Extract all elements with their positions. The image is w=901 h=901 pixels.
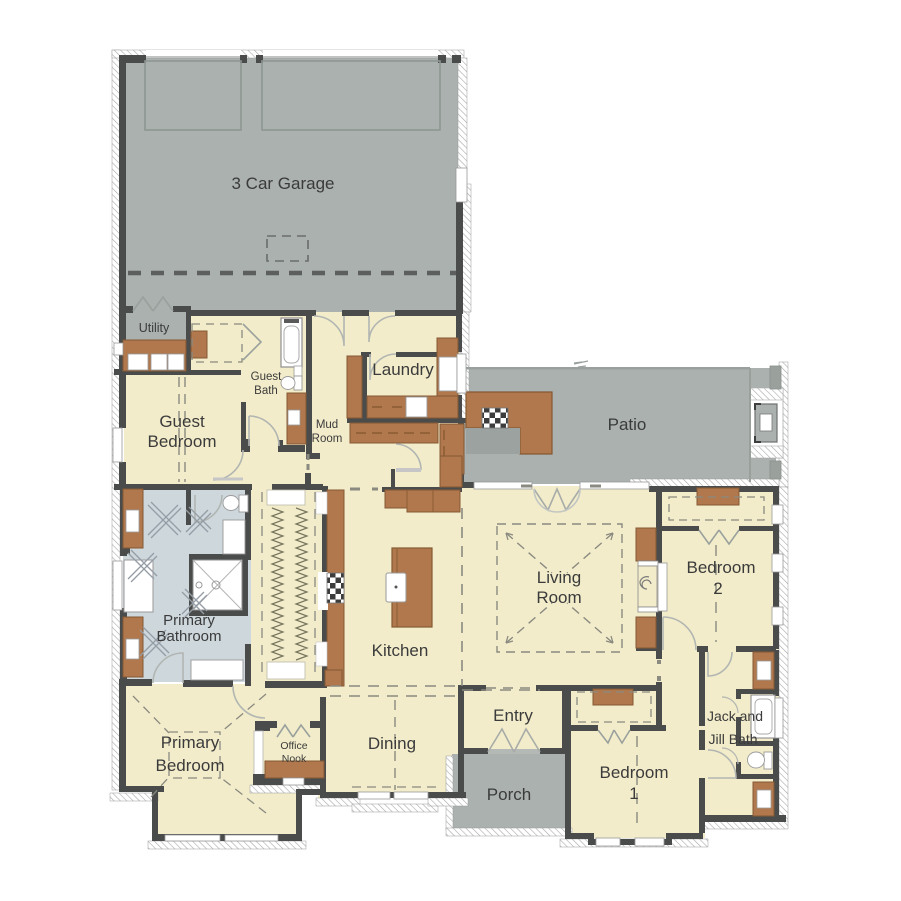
svg-text:Porch: Porch — [487, 785, 531, 804]
svg-text:Bath: Bath — [254, 385, 278, 397]
svg-text:Guest: Guest — [159, 412, 205, 431]
svg-text:Dining: Dining — [368, 734, 416, 753]
svg-text:Bathroom: Bathroom — [156, 628, 221, 645]
svg-text:3 Car Garage: 3 Car Garage — [232, 174, 335, 193]
svg-text:Nook: Nook — [282, 753, 307, 765]
svg-text:Bedroom: Bedroom — [156, 756, 225, 775]
svg-text:Guest: Guest — [251, 371, 282, 383]
svg-text:Room: Room — [536, 588, 581, 607]
svg-text:Mud: Mud — [316, 419, 338, 431]
svg-text:Entry: Entry — [493, 706, 533, 725]
svg-text:Bedroom: Bedroom — [148, 432, 217, 451]
svg-text:Kitchen: Kitchen — [372, 641, 429, 660]
svg-text:Primary: Primary — [163, 612, 215, 629]
svg-text:Utility: Utility — [139, 321, 170, 335]
svg-text:Room: Room — [312, 433, 343, 445]
svg-text:Primary: Primary — [161, 733, 220, 752]
svg-text:Living: Living — [537, 568, 581, 587]
svg-text:Laundry: Laundry — [372, 360, 434, 379]
svg-text:Jill Bath: Jill Bath — [708, 731, 757, 747]
svg-text:2: 2 — [713, 579, 722, 598]
svg-text:Patio: Patio — [608, 415, 647, 434]
svg-text:Bedroom: Bedroom — [600, 763, 669, 782]
svg-text:Office: Office — [280, 740, 307, 752]
svg-text:Bedroom: Bedroom — [687, 558, 756, 577]
svg-text:1: 1 — [629, 784, 638, 803]
svg-text:Jack and: Jack and — [707, 708, 763, 724]
